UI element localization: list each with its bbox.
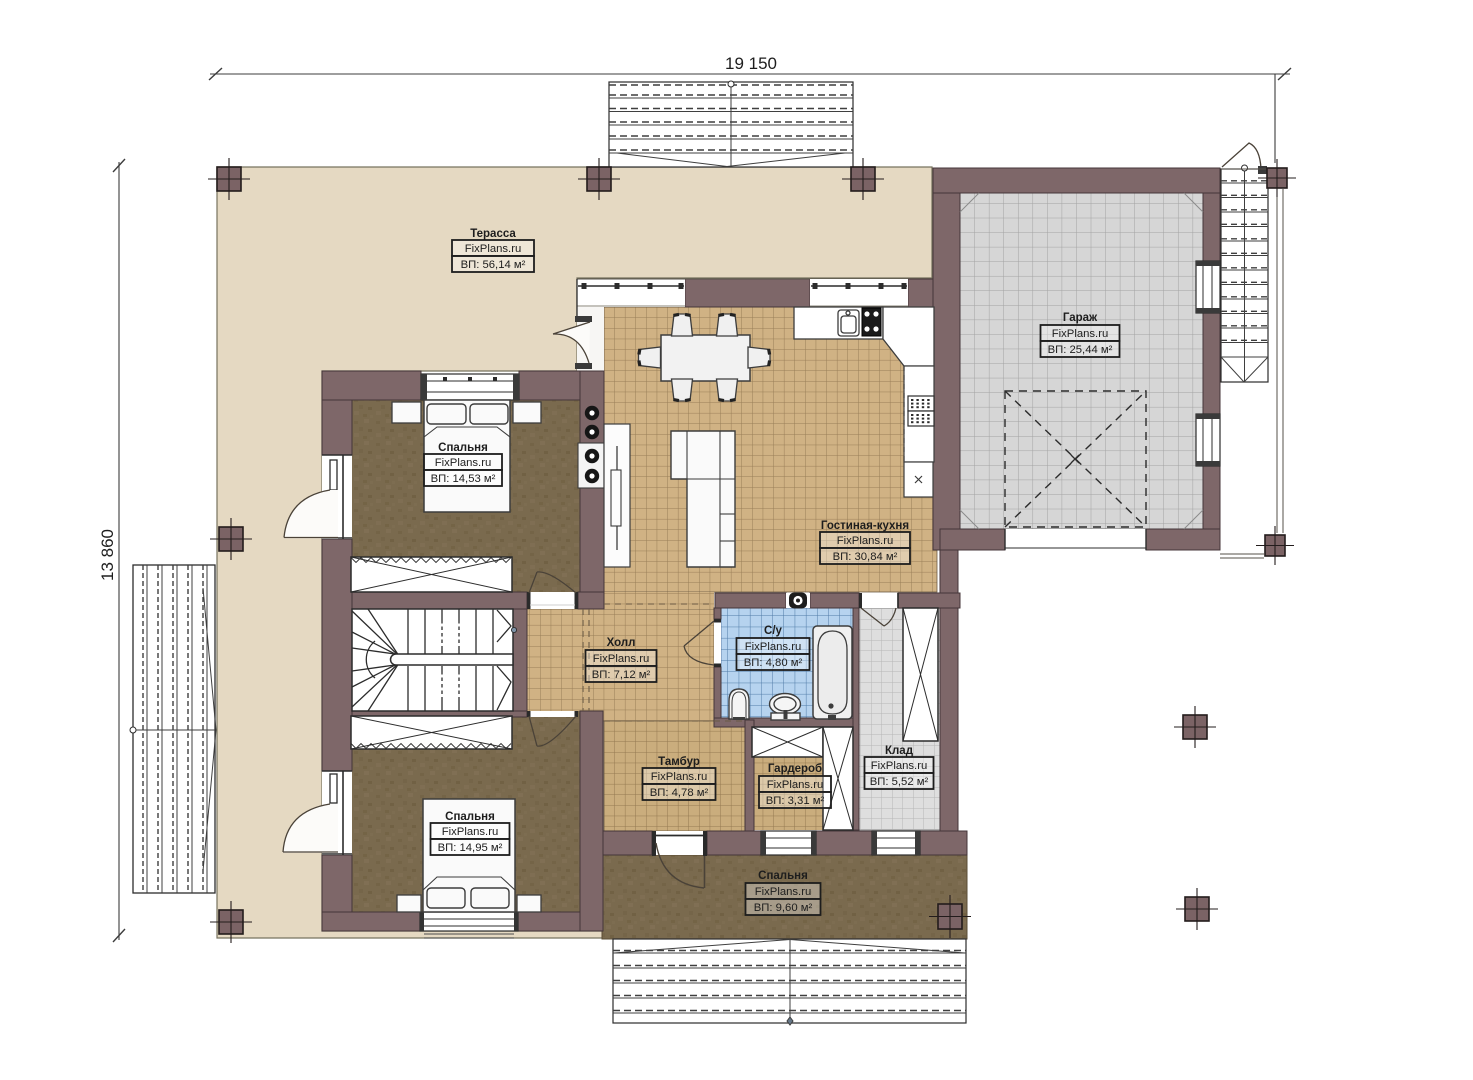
svg-text:FixPlans.ru: FixPlans.ru xyxy=(767,779,824,791)
svg-text:FixPlans.ru: FixPlans.ru xyxy=(837,535,894,547)
svg-text:Спальня: Спальня xyxy=(758,870,808,882)
svg-text:ВП: 9,60 м²: ВП: 9,60 м² xyxy=(754,902,813,914)
svg-text:FixPlans.ru: FixPlans.ru xyxy=(442,826,499,838)
svg-text:Гостиная-кухня: Гостиная-кухня xyxy=(821,520,909,532)
svg-text:FixPlans.ru: FixPlans.ru xyxy=(745,641,802,653)
svg-text:Терасса: Терасса xyxy=(470,228,516,240)
svg-text:ВП: 56,14 м²: ВП: 56,14 м² xyxy=(461,259,526,271)
svg-text:Холл: Холл xyxy=(607,637,636,649)
svg-text:FixPlans.ru: FixPlans.ru xyxy=(435,457,492,469)
svg-text:Спальня: Спальня xyxy=(438,442,488,454)
svg-text:Спальня: Спальня xyxy=(445,811,495,823)
svg-text:FixPlans.ru: FixPlans.ru xyxy=(871,760,928,772)
svg-text:FixPlans.ru: FixPlans.ru xyxy=(593,653,650,665)
svg-text:FixPlans.ru: FixPlans.ru xyxy=(1052,328,1109,340)
svg-text:ВП: 5,52 м²: ВП: 5,52 м² xyxy=(870,776,929,788)
svg-text:19 150: 19 150 xyxy=(725,54,777,73)
svg-text:Гардероб: Гардероб xyxy=(768,763,822,775)
svg-text:ВП: 25,44 м²: ВП: 25,44 м² xyxy=(1048,344,1113,356)
svg-text:ВП: 30,84 м²: ВП: 30,84 м² xyxy=(833,551,898,563)
svg-text:ВП: 3,31 м²: ВП: 3,31 м² xyxy=(766,795,825,807)
svg-text:13 860: 13 860 xyxy=(98,529,117,581)
svg-text:Тамбур: Тамбур xyxy=(658,756,700,768)
svg-text:Гараж: Гараж xyxy=(1063,312,1098,324)
svg-text:ВП: 14,53 м²: ВП: 14,53 м² xyxy=(431,473,496,485)
svg-text:ВП: 7,12 м²: ВП: 7,12 м² xyxy=(592,669,651,681)
svg-text:ВП: 4,78 м²: ВП: 4,78 м² xyxy=(650,787,709,799)
svg-text:ВП: 4,80 м²: ВП: 4,80 м² xyxy=(744,657,803,669)
svg-text:FixPlans.ru: FixPlans.ru xyxy=(651,771,708,783)
svg-text:С/у: С/у xyxy=(764,625,783,637)
svg-text:ВП: 14,95 м²: ВП: 14,95 м² xyxy=(438,842,503,854)
svg-text:FixPlans.ru: FixPlans.ru xyxy=(465,243,522,255)
svg-text:Клад: Клад xyxy=(885,745,914,757)
svg-text:FixPlans.ru: FixPlans.ru xyxy=(755,886,812,898)
